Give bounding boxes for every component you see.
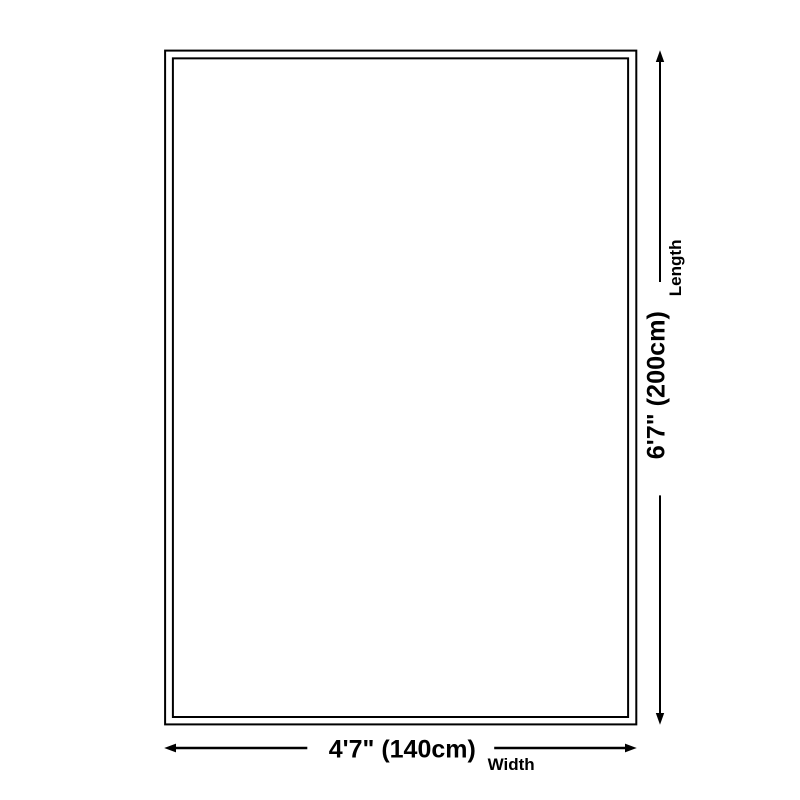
svg-text:4'7" (140cm): 4'7" (140cm): [329, 736, 476, 764]
svg-text:6'7" (200cm): 6'7" (200cm): [643, 311, 671, 459]
svg-text:Length: Length: [666, 240, 685, 297]
svg-text:Width: Width: [488, 755, 535, 774]
